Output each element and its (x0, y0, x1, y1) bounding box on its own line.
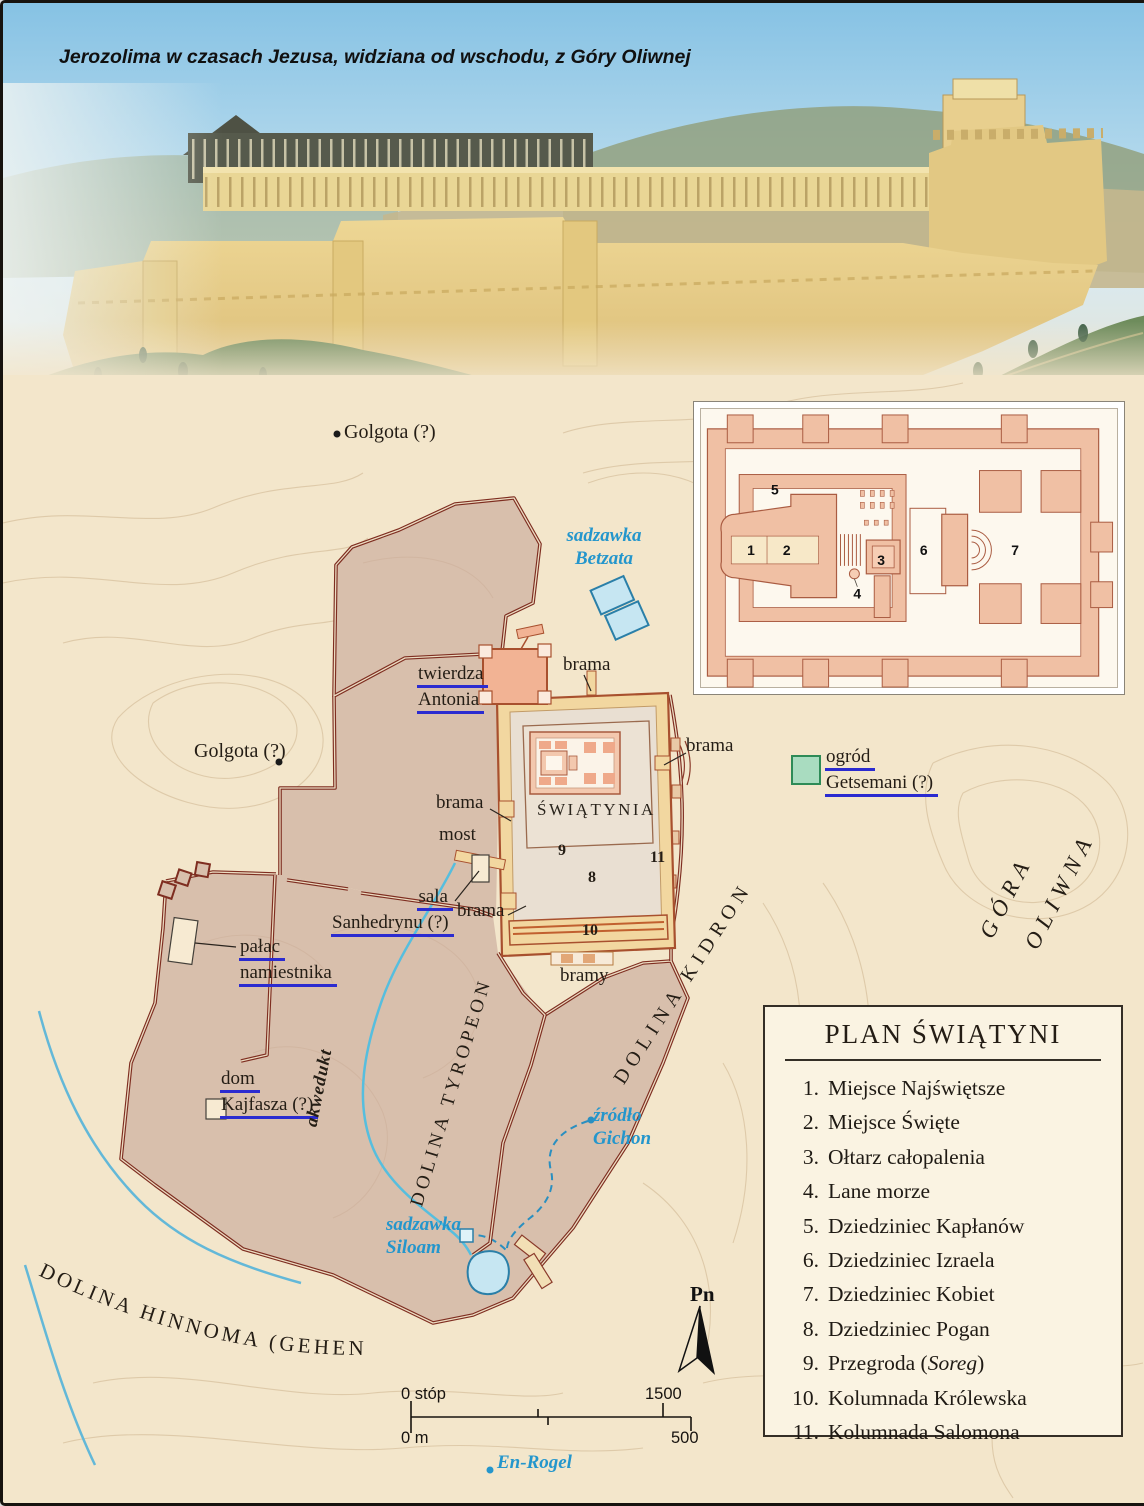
legend-item-6: 6.Dziedziniec Izraela (765, 1243, 1121, 1277)
gichon-spring-label: źródło Gichon (593, 1104, 651, 1150)
jerusalem-map-page: DOLINA HINNOMA (GEHENNA) Jerozolima w cz… (0, 0, 1144, 1506)
gate-east-label: brama (686, 734, 733, 757)
golgota-left-label: Golgota (?) (194, 739, 286, 763)
golgota-top-label: Golgota (?) (344, 420, 436, 444)
map-number-8: 8 (588, 869, 596, 887)
siloam-small-pool (460, 1229, 473, 1242)
temple-label: ŚWIĄTYNIA (537, 800, 656, 821)
gate-west-lower-label: brama (457, 899, 504, 922)
temple-plan-legend: PLAN ŚWIĄTYNI 1.Miejsce Najświętsze 2.Mi… (763, 1005, 1123, 1437)
sanhedrin-hall-link[interactable]: sala Sanhedrynu (?) (331, 885, 453, 937)
legend-item-9: 9.Przegroda (Soreg) (765, 1346, 1121, 1380)
legend-item-11: 11.Kolumnada Salomona (765, 1415, 1121, 1449)
inset-number-6: 6 (920, 542, 928, 558)
map-title-line1: Jerozolima w czasach Jezusa, (59, 46, 339, 68)
scale-m-start: 0 m (401, 1429, 429, 1448)
getsemani-square (792, 756, 820, 784)
legend-divider (785, 1059, 1101, 1061)
legend-item-5: 5.Dziedziniec Kapłanów (765, 1209, 1121, 1243)
map-title-line2: widziana od wschodu, z Góry Oliwnej (344, 46, 691, 68)
inset-number-1: 1 (747, 542, 755, 558)
temple-plan-drawing: 1 2 3 4 5 6 7 (701, 409, 1119, 689)
en-rogel-label: En-Rogel (497, 1451, 572, 1474)
inset-number-7: 7 (1011, 542, 1019, 558)
temple-building-plan (530, 732, 620, 794)
getsemani-garden-link[interactable]: ogród Getsemani (?) (825, 745, 938, 797)
legend-item-4: 4.Lane morze (765, 1174, 1121, 1208)
legend-item-10: 10.Kolumnada Królewska (765, 1381, 1121, 1415)
temple-plan-inset: 1 2 3 4 5 6 7 (693, 401, 1125, 695)
gates-south-label: bramy (560, 964, 609, 987)
legend-item-3: 3.Ołtarz całopalenia (765, 1140, 1121, 1174)
west-gate-upper (499, 801, 514, 817)
gate-north-label: brama (563, 653, 610, 676)
bridge-label: most (439, 823, 476, 846)
inset-number-5: 5 (771, 481, 779, 497)
scale-feet-start: 0 stóp (401, 1385, 446, 1404)
scale-m-end: 500 (671, 1429, 699, 1448)
antonia-fortress-link[interactable]: twierdza Antonia (417, 662, 488, 714)
inset-number-2: 2 (783, 542, 791, 558)
map-title: Jerozolima w czasach Jezusa, widziana od… (59, 45, 691, 70)
siloam-pool-label: sadzawka Siloam (386, 1213, 461, 1259)
legend-title: PLAN ŚWIĄTYNI (765, 1019, 1121, 1050)
inset-number-4: 4 (853, 586, 861, 602)
scale-feet-end: 1500 (645, 1385, 682, 1404)
map-number-11: 11 (650, 849, 665, 867)
compass-north-label: Pn (690, 1282, 715, 1307)
siloam-pool (468, 1251, 509, 1294)
gate-west-upper-label: brama (436, 791, 483, 814)
en-rogel-dot (487, 1467, 494, 1474)
inset-number-3: 3 (877, 552, 885, 568)
temple-plan-frame: 1 2 3 4 5 6 7 (700, 408, 1118, 688)
legend-item-8: 8.Dziedziniec Pogan (765, 1312, 1121, 1346)
map-number-9: 9 (558, 842, 566, 860)
governor-palace-link[interactable]: pałac namiestnika (239, 935, 337, 987)
sanhedrin-hall (472, 855, 489, 882)
map-number-10: 10 (582, 922, 598, 940)
legend-item-2: 2.Miejsce Święte (765, 1105, 1121, 1139)
golgota-top-dot (334, 431, 341, 438)
legend-item-1: 1.Miejsce Najświętsze (765, 1071, 1121, 1105)
legend-item-7: 7.Dziedziniec Kobiet (765, 1277, 1121, 1311)
betzata-pool-label: sadzawka Betzata (548, 524, 660, 570)
